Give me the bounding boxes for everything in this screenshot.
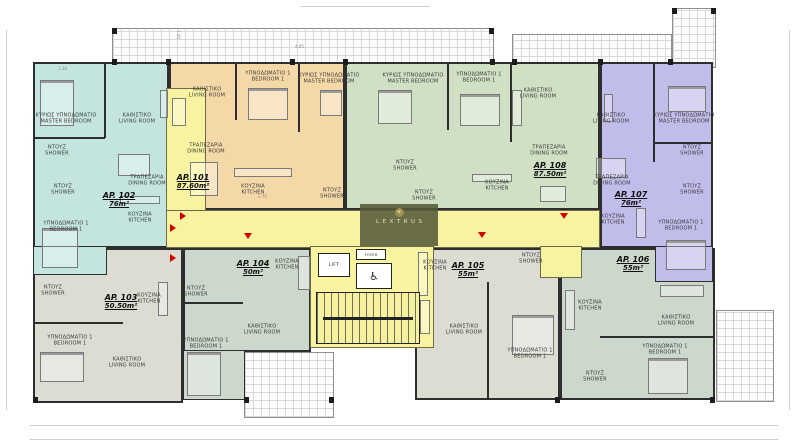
column xyxy=(244,397,249,403)
dimension-label: 3.28 xyxy=(58,66,67,71)
room-label: ΚΟΥΖΙΝΑKITCHEN xyxy=(137,293,161,305)
room-label: ΝΤΟΥΖSHOWER xyxy=(45,145,69,157)
bed xyxy=(42,228,78,268)
balcony xyxy=(672,8,716,68)
bed xyxy=(40,352,84,382)
room-label: ΝΤΟΥΖSHOWER xyxy=(51,184,75,196)
column xyxy=(329,397,334,403)
bed xyxy=(460,94,500,126)
staircase xyxy=(316,292,420,344)
room-label: ΝΤΟΥΖSHOWER xyxy=(393,160,417,172)
sofa xyxy=(660,285,704,297)
column xyxy=(489,28,494,34)
accessible-wc: ♿ xyxy=(356,263,392,289)
room-label: ΝΤΟΥΖSHOWER xyxy=(583,371,607,383)
room-label: ΝΤΟΥΖSHOWER xyxy=(320,188,344,200)
room-label: ΚΟΥΖΙΝΑKITCHEN xyxy=(485,180,509,192)
room-label: ΚΥΡΙΩΣ ΥΠΝΟΔΩΜΑΤΙΟMASTER BEDROOM xyxy=(299,73,360,85)
room-label: ΥΠΝΟΔΩΜΑΤΙΟ 1BEDROOM 1 xyxy=(245,71,290,83)
column xyxy=(33,397,38,403)
apartment-tag-ap-104: AP. 10450m² xyxy=(237,259,270,276)
room-label: ΚΟΥΖΙΝΑKITCHEN xyxy=(601,214,625,226)
room-label: ΚΥΡΙΩΣ ΥΠΝΟΔΩΜΑΤΙΟMASTER BEDROOM xyxy=(383,73,444,85)
brand-banner: ✳ LEXTRUS xyxy=(360,204,438,246)
bed xyxy=(320,90,342,116)
kitchen-counter xyxy=(298,256,310,290)
dining-table xyxy=(540,186,566,202)
column xyxy=(672,8,677,14)
column xyxy=(555,397,560,403)
wall xyxy=(447,62,449,130)
column xyxy=(343,59,348,65)
entrance-marker xyxy=(478,232,486,238)
room-label: ΚΑΘΙΣΤΙΚΟLIVING ROOM xyxy=(520,88,556,100)
room-label: ΝΤΟΥΖSHOWER xyxy=(184,286,208,298)
lift: LIFT xyxy=(318,253,350,277)
apartment-tag-ap-107: AP. 10776m² xyxy=(615,190,648,207)
bed xyxy=(668,86,706,112)
room-label: ΝΤΟΥΖSHOWER xyxy=(412,190,436,202)
dimension-label: 1.40 xyxy=(176,30,181,39)
room-label: ΝΤΟΥΖSHOWER xyxy=(41,285,65,297)
stair-landing-divider xyxy=(323,317,413,320)
dimension-label: 4.85 xyxy=(295,44,304,49)
room-label: ΤΡΑΠΕΖΑΡΙΑDINING ROOM xyxy=(128,175,166,187)
kitchen-counter xyxy=(636,208,646,238)
room-label: ΚΑΘΙΣΤΙΚΟLIVING ROOM xyxy=(446,324,482,336)
room-label: ΚΟΥΖΙΝΑKITCHEN xyxy=(128,212,152,224)
wall xyxy=(235,62,237,120)
room-label: ΝΤΟΥΖSHOWER xyxy=(519,253,543,265)
room-label: ΚΟΥΖΙΝΑKITCHEN xyxy=(241,184,265,196)
apartment-tag-ap-102: AP. 10276m² xyxy=(103,191,136,208)
column xyxy=(711,8,716,14)
room-label: ΥΠΝΟΔΩΜΑΤΙΟ 1BEDROOM 1 xyxy=(456,72,501,84)
foyer-label: FOYER xyxy=(365,253,378,257)
room-label: ΤΡΑΠΕΖΑΡΙΑDINING ROOM xyxy=(187,143,225,155)
column xyxy=(668,59,673,65)
bed xyxy=(187,352,221,396)
balcony xyxy=(244,352,334,418)
sofa xyxy=(172,98,186,126)
bed xyxy=(648,358,688,394)
column xyxy=(166,59,171,65)
entrance-marker xyxy=(180,212,186,220)
bed xyxy=(378,90,412,124)
wheelchair-icon: ♿ xyxy=(369,271,379,282)
room-label: ΥΠΝΟΔΩΜΑΤΙΟ 1BEDROOM 1 xyxy=(642,344,687,356)
wall xyxy=(600,336,713,338)
kitchen-counter xyxy=(565,290,575,330)
room-label: ΥΠΝΟΔΩΜΑΤΙΟ 1BEDROOM 1 xyxy=(658,220,703,232)
room-label: ΚΟΥΖΙΝΑKITCHEN xyxy=(275,259,299,271)
room-label: ΝΤΟΥΖSHOWER xyxy=(680,145,704,157)
column xyxy=(290,59,295,65)
room-label: ΚΑΘΙΣΤΙΚΟLIVING ROOM xyxy=(244,324,280,336)
column xyxy=(112,59,117,65)
apartment-tag-ap-101: AP. 10187.60m² xyxy=(177,173,210,190)
entrance-marker xyxy=(170,224,176,232)
column xyxy=(112,28,117,34)
apartment-tag-ap-108: AP. 10887.50m² xyxy=(534,161,567,178)
wall xyxy=(33,137,105,139)
room-label: ΤΡΑΠΕΖΑΡΙΑDINING ROOM xyxy=(530,145,568,157)
column xyxy=(490,59,495,65)
room-label: ΚΑΘΙΣΤΙΚΟLIVING ROOM xyxy=(189,87,225,99)
dimension-line xyxy=(6,30,7,410)
column xyxy=(512,59,517,65)
bed xyxy=(248,88,288,120)
dimension-line xyxy=(789,30,790,410)
lift-label: LIFT xyxy=(329,263,339,268)
entrance-marker xyxy=(170,254,176,262)
room-label: ΚΑΘΙΣΤΙΚΟLIVING ROOM xyxy=(593,113,629,125)
apartment-tag-ap-103: AP. 10350.50m² xyxy=(105,293,138,310)
foyer: FOYER xyxy=(356,249,386,260)
dimension-line xyxy=(300,6,430,7)
asterisk-emblem-icon: ✳ xyxy=(395,208,404,217)
wall xyxy=(33,322,123,324)
bed xyxy=(666,240,706,270)
column xyxy=(710,397,715,403)
dimension-line xyxy=(30,425,778,426)
wall xyxy=(183,302,243,304)
apartment-tag-ap-105: AP. 10555m² xyxy=(452,261,485,278)
column xyxy=(598,59,603,65)
room-label: ΚΟΥΖΙΝΑKITCHEN xyxy=(578,300,602,312)
room-label: ΚΥΡΙΩΣ ΥΠΝΟΔΩΜΑΤΙΟMASTER BEDROOM xyxy=(654,113,715,125)
balcony xyxy=(716,310,774,402)
room-label: ΥΠΝΟΔΩΜΑΤΙΟ 1BEDROOM 1 xyxy=(183,338,228,350)
sofa xyxy=(420,300,430,334)
brand-logo-text: LEXTRUS xyxy=(360,219,438,225)
room-label: ΚΟΥΖΙΝΑKITCHEN xyxy=(423,260,447,272)
dining-table xyxy=(118,154,150,176)
room-label: ΚΑΘΙΣΤΙΚΟLIVING ROOM xyxy=(119,113,155,125)
dimension-line xyxy=(30,439,778,440)
room-label: ΤΡΑΠΕΖΑΡΙΑDINING ROOM xyxy=(593,175,631,187)
entrance-marker xyxy=(244,233,252,239)
floor-plan: LIFT FOYER ♿ ✳ LEXTRUS xyxy=(0,0,796,448)
room-label: ΥΠΝΟΔΩΜΑΤΙΟ 1BEDROOM 1 xyxy=(43,221,88,233)
sofa xyxy=(160,90,168,118)
room-label: ΥΠΝΟΔΩΜΑΤΙΟ 1BEDROOM 1 xyxy=(507,348,552,360)
room-label: ΝΤΟΥΖSHOWER xyxy=(680,184,704,196)
kitchen-counter xyxy=(234,168,292,177)
room-label: ΚΥΡΙΩΣ ΥΠΝΟΔΩΜΑΤΙΟMASTER BEDROOM xyxy=(36,113,97,125)
room-label: ΚΑΘΙΣΤΙΚΟLIVING ROOM xyxy=(658,315,694,327)
corridor xyxy=(540,246,582,278)
entrance-marker xyxy=(560,213,568,219)
wall xyxy=(487,282,489,400)
room-label: ΥΠΝΟΔΩΜΑΤΙΟ 1BEDROOM 1 xyxy=(47,335,92,347)
wall xyxy=(104,62,106,138)
room-label: ΚΑΘΙΣΤΙΚΟLIVING ROOM xyxy=(109,357,145,369)
apartment-tag-ap-106: AP. 10655m² xyxy=(617,255,650,272)
